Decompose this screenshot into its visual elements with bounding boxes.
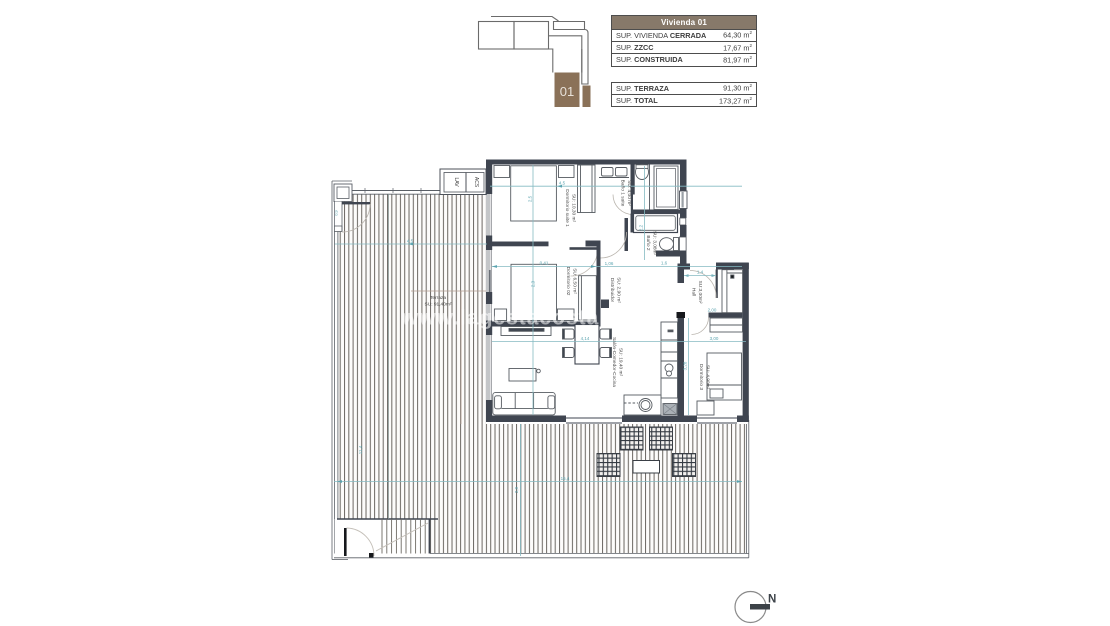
svg-text:15,4: 15,4 xyxy=(561,476,570,481)
svg-text:ACS: ACS xyxy=(473,177,479,188)
svg-text:2,2: 2,2 xyxy=(639,224,644,231)
svg-text:11,4: 11,4 xyxy=(358,445,363,454)
svg-text:4,5: 4,5 xyxy=(407,239,414,244)
svg-text:SU: 6,50 m²: SU: 6,50 m² xyxy=(572,268,578,294)
svg-text:3,28: 3,28 xyxy=(683,361,688,370)
svg-text:4,14: 4,14 xyxy=(581,336,590,341)
svg-text:SU: 10,30 m²: SU: 10,30 m² xyxy=(571,194,577,223)
svg-text:Hall: Hall xyxy=(691,288,697,296)
svg-text:0,9: 0,9 xyxy=(334,209,339,215)
svg-text:www.lagestacosta.es: www.lagestacosta.es xyxy=(401,307,631,330)
svg-text:SU: 19,40 m²: SU: 19,40 m² xyxy=(618,348,624,377)
svg-text:01: 01 xyxy=(560,84,574,99)
svg-text:2,5: 2,5 xyxy=(528,195,533,202)
svg-text:2,3: 2,3 xyxy=(531,280,536,287)
svg-text:SU: 4,90m²: SU: 4,90m² xyxy=(705,365,711,390)
svg-text:Dormitorio 02: Dormitorio 02 xyxy=(565,267,571,296)
svg-text:SU: 2,90 m²: SU: 2,90 m² xyxy=(616,277,622,303)
svg-text:2,9: 2,9 xyxy=(514,486,519,493)
svg-text:SU:3,00m²: SU:3,00m² xyxy=(697,281,703,304)
svg-text:SU: 4,00 m²: SU: 4,00 m² xyxy=(626,180,632,206)
svg-text:LAV: LAV xyxy=(453,177,459,187)
svg-text:Distribuidor: Distribuidor xyxy=(609,278,615,303)
svg-text:0,41: 0,41 xyxy=(540,261,549,266)
svg-text:Salón-Comedor-Cocina: Salón-Comedor-Cocina xyxy=(611,337,617,387)
svg-text:1,6: 1,6 xyxy=(661,261,668,266)
svg-text:3,00: 3,00 xyxy=(710,336,719,341)
svg-text:Dormitorio suite 1: Dormitorio suite 1 xyxy=(564,189,570,227)
svg-text:Terraza: Terraza xyxy=(430,295,446,301)
svg-text:Baño 1 suite: Baño 1 suite xyxy=(620,180,626,207)
svg-text:4,5: 4,5 xyxy=(559,181,566,186)
svg-text:N: N xyxy=(768,594,776,606)
svg-text:Baño 2: Baño 2 xyxy=(645,235,651,251)
svg-text:Dormitorio 3: Dormitorio 3 xyxy=(698,364,704,390)
svg-text:1,06: 1,06 xyxy=(605,261,614,266)
svg-text:SU: 3,08m²: SU: 3,08m² xyxy=(652,231,658,256)
svg-text:1,4: 1,4 xyxy=(697,270,704,275)
svg-text:2,00: 2,00 xyxy=(708,308,717,313)
